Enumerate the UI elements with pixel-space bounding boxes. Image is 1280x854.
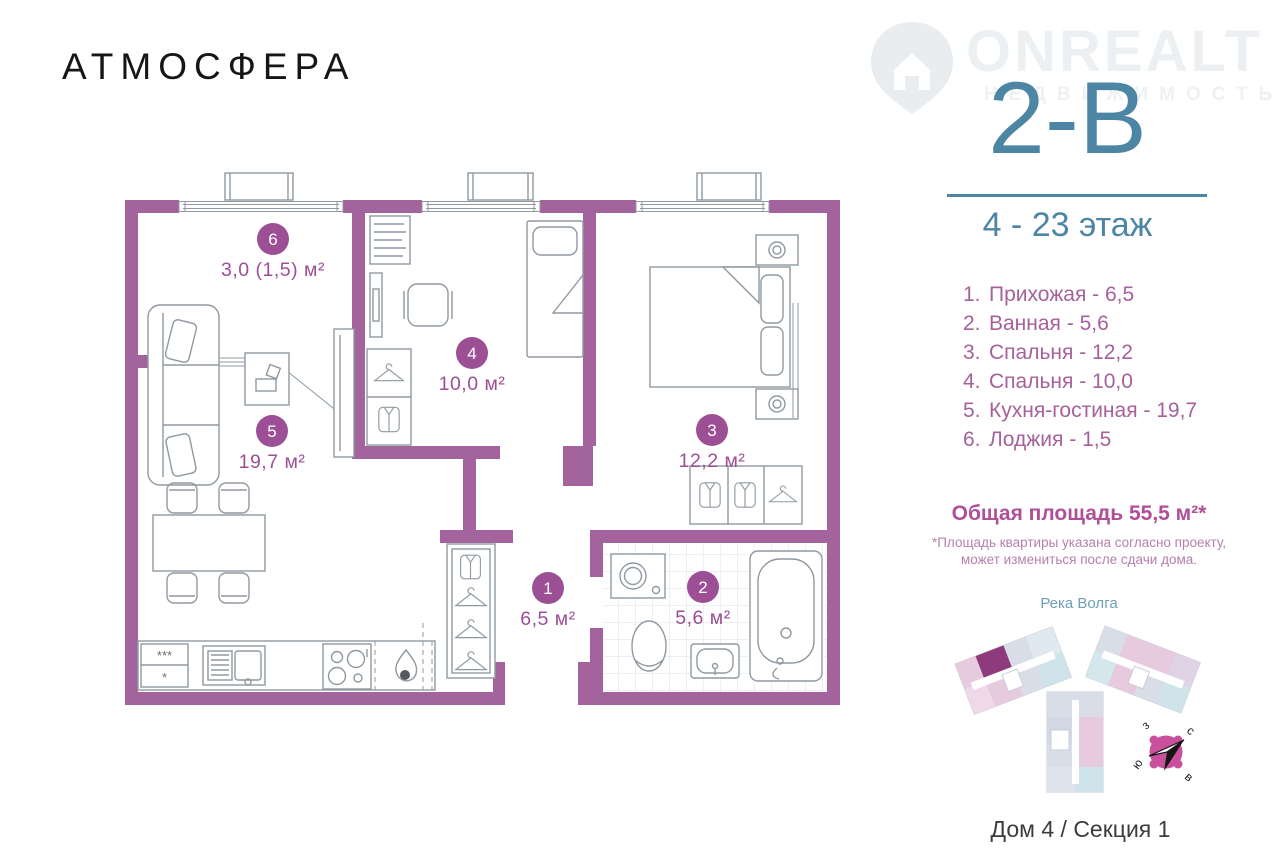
compass-north: с — [1184, 723, 1197, 738]
nightstand-bottom — [756, 389, 798, 419]
unit-code: 2-В — [920, 52, 1215, 185]
room-label-3: 3 12,2 м² — [679, 414, 746, 472]
room-list-num: 6. — [963, 428, 989, 452]
hallway-closet — [447, 544, 495, 678]
room-area: 10,0 м² — [439, 373, 506, 395]
desk-chair — [404, 284, 452, 326]
room-list-item: 6.Лоджия - 1,5 — [963, 425, 1197, 454]
room-list-num: 3. — [963, 341, 989, 365]
room-number: 4 — [467, 344, 476, 363]
tv-cabinet — [334, 329, 354, 457]
room-list: 1.Прихожая - 6,5 2.Ванная - 5,6 3.Спальн… — [963, 280, 1197, 454]
flyer-page: ONREALT НЕДВИЖИМОСТЬ АТМОСФЕРА 2-В 4 - 2… — [0, 0, 1280, 854]
fridge-mark: * — [162, 670, 167, 685]
room-list-num: 4. — [963, 370, 989, 394]
coffee-table — [245, 353, 289, 405]
washing-machine — [611, 554, 665, 598]
shelf-unit — [370, 216, 410, 264]
compass-east: в — [1182, 770, 1196, 785]
room-number: 5 — [267, 422, 276, 441]
floor-plan: *** * — [125, 163, 840, 708]
single-bed — [527, 221, 583, 357]
dining-table — [153, 483, 265, 603]
room-list-label: Ванная - 5,6 — [989, 312, 1109, 336]
kitchen-sink — [203, 646, 265, 685]
room-area: 3,0 (1,5) м² — [221, 259, 325, 281]
compass-south: ю — [1129, 756, 1146, 771]
room-list-item: 3.Спальня - 12,2 — [963, 338, 1197, 367]
fridge-freezer-mark: *** — [157, 648, 172, 663]
kitchen-counter: *** * — [138, 641, 435, 690]
bathroom-sink — [691, 644, 739, 678]
developer-logo: АТМОСФЕРА — [62, 46, 355, 88]
disclaimer: *Площадь квартиры указана согласно проек… — [898, 534, 1260, 568]
room-area: 6,5 м² — [520, 608, 575, 630]
room-list-label: Лоджия - 1,5 — [989, 428, 1111, 452]
disclaimer-line1: *Площадь квартиры указана согласно проек… — [898, 534, 1260, 551]
room-area: 12,2 м² — [679, 450, 746, 472]
compass-icon: з с ю в — [1125, 710, 1207, 796]
wardrobe-room3 — [690, 466, 802, 524]
room-list-item: 2.Ванная - 5,6 — [963, 309, 1197, 338]
toilet — [632, 621, 666, 671]
room-number: 3 — [707, 421, 716, 440]
room-list-label: Кухня-гостиная - 19,7 — [989, 399, 1197, 423]
bathtub — [750, 551, 822, 681]
room-number: 6 — [268, 230, 277, 249]
disclaimer-line2: может измениться после сдачи дома. — [898, 551, 1260, 568]
sofa — [148, 305, 219, 485]
fridge: *** * — [141, 644, 188, 687]
room-label-1: 1 6,5 м² — [520, 572, 575, 630]
floor-range: 4 - 23 этаж — [920, 206, 1215, 245]
room-list-item: 4.Спальня - 10,0 — [963, 367, 1197, 396]
room-list-label: Спальня - 10,0 — [989, 370, 1133, 394]
room-number: 1 — [543, 579, 552, 598]
stove — [323, 644, 371, 689]
room-label-4: 4 10,0 м² — [439, 337, 506, 395]
room-list-item: 5.Кухня-гостиная - 19,7 — [963, 396, 1197, 425]
room-area: 19,7 м² — [239, 451, 306, 473]
river-label: Река Волга — [898, 595, 1260, 612]
room-list-num: 2. — [963, 312, 989, 336]
room-area: 5,6 м² — [675, 607, 730, 629]
balcony-outlines — [225, 173, 761, 200]
room-list-label: Спальня - 12,2 — [989, 341, 1133, 365]
room-list-label: Прихожая - 6,5 — [989, 283, 1134, 307]
gas-flame-icon — [396, 650, 417, 681]
total-area: Общая площадь 55,5 м²* — [898, 502, 1260, 526]
room-list-item: 1.Прихожая - 6,5 — [963, 280, 1197, 309]
double-bed — [650, 267, 790, 387]
house-section-caption: Дом 4 / Секция 1 — [928, 816, 1233, 843]
wardrobe-room4 — [367, 349, 411, 445]
desk — [370, 273, 382, 337]
minimap-building-bottom — [1047, 692, 1103, 792]
nightstand-top — [756, 235, 798, 265]
room-label-5: 5 19,7 м² — [239, 415, 306, 473]
divider-line — [947, 194, 1207, 197]
compass-rose — [1149, 736, 1184, 772]
room-list-num: 1. — [963, 283, 989, 307]
room-number: 2 — [698, 578, 707, 597]
compass-west: з — [1139, 718, 1153, 733]
room-label-6: 6 3,0 (1,5) м² — [221, 223, 325, 281]
room-list-num: 5. — [963, 399, 989, 423]
